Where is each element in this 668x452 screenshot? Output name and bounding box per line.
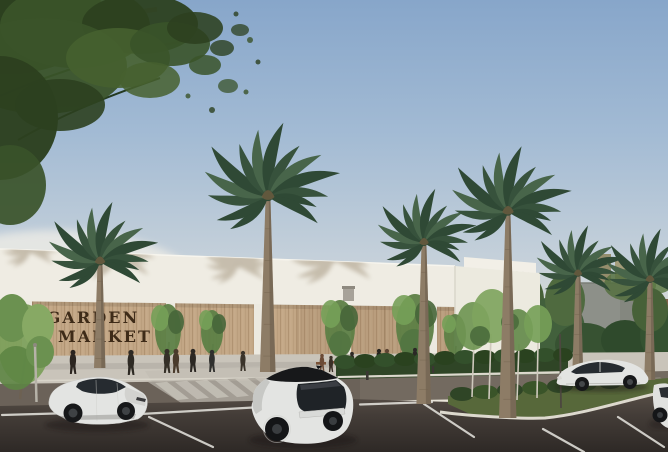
rendering-canvas: GARDEN MARKET bbox=[0, 0, 668, 452]
light-pole-island bbox=[560, 334, 561, 408]
sign-line-2: MARKET bbox=[58, 327, 152, 346]
sign-line-1: GARDEN bbox=[47, 308, 140, 327]
architectural-rendering: GARDEN MARKET bbox=[0, 0, 668, 452]
rooftop-vent bbox=[342, 286, 355, 301]
